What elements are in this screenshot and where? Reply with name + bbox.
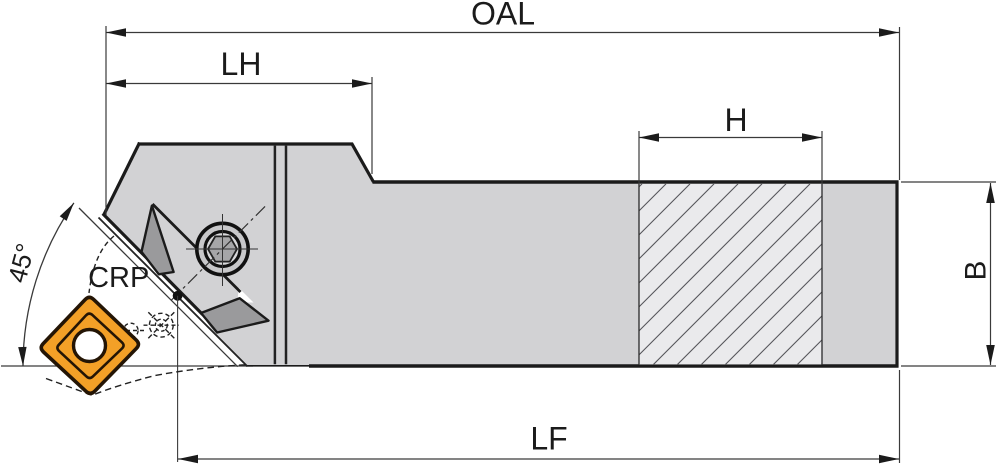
svg-text:LH: LH: [221, 46, 262, 82]
svg-text:LF: LF: [530, 421, 567, 457]
svg-text:OAL: OAL: [471, 0, 535, 32]
svg-text:CRP: CRP: [88, 262, 149, 294]
svg-text:B: B: [960, 260, 993, 280]
svg-text:H: H: [724, 102, 747, 138]
